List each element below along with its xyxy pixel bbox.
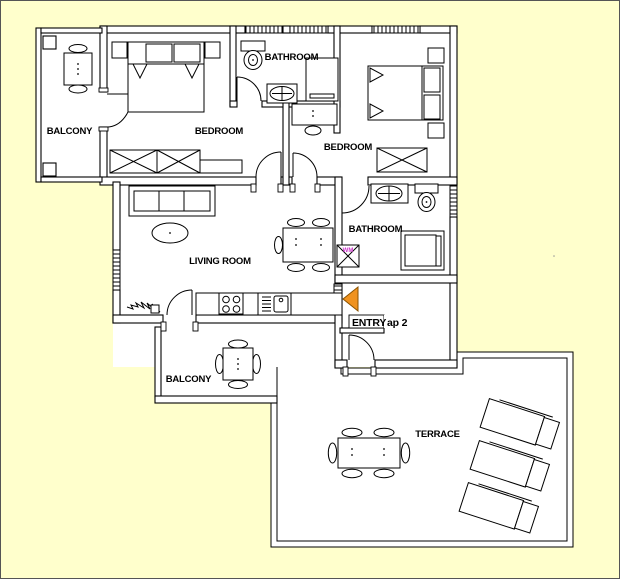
window-icon: [372, 26, 420, 33]
bedroom-left-label: BEDROOM: [195, 126, 243, 137]
wall-segment: [450, 26, 457, 185]
desk-chair-icon: [305, 126, 321, 135]
chair-icon: [342, 428, 362, 436]
double-bed-icon: [128, 42, 204, 112]
chair-icon: [288, 219, 305, 227]
floor-plan: WM ENTRY ap 2: [0, 0, 620, 579]
chair-icon: [216, 355, 224, 374]
sink-icon: [371, 184, 408, 203]
wall-segment: [41, 177, 102, 182]
sofa-icon: [129, 186, 215, 216]
wall-segment: [230, 26, 236, 106]
wall-segment: [230, 101, 237, 107]
desk-icon: [292, 104, 337, 125]
chair-icon: [313, 219, 330, 227]
wall-segment: [335, 177, 342, 367]
wall-segment: [155, 396, 277, 403]
chair-icon: [69, 45, 87, 53]
wall-segment: [375, 360, 457, 368]
terrace-label: TERRACE: [415, 429, 460, 440]
balcony-pillar: [43, 163, 56, 176]
living-room-label: LIVING ROOM: [189, 256, 251, 267]
balcony-top-label: BALCONY: [47, 126, 93, 137]
window-icon: [245, 26, 283, 33]
stove-icon: [219, 293, 243, 314]
balcony-bottom-label: BALCONY: [166, 374, 212, 385]
balcony-pillar: [43, 36, 56, 49]
wall-segment: [155, 327, 161, 397]
stray-dot: [553, 255, 555, 257]
chair-icon: [313, 264, 330, 272]
wall-segment: [196, 315, 342, 323]
sink-icon: [267, 84, 297, 103]
kitchen-sink-icon: [258, 293, 291, 315]
chair-icon: [229, 340, 248, 348]
nightstand-icon: [112, 42, 127, 58]
kitchen-counter: [196, 293, 342, 315]
entry-label: ENTRY: [352, 317, 386, 329]
chair-icon: [374, 469, 394, 477]
window-icon: [290, 26, 328, 33]
coffee-table-icon: [152, 223, 188, 243]
chair-icon: [401, 443, 409, 463]
chair-icon: [328, 443, 336, 463]
washing-machine-icon: WM: [337, 245, 359, 267]
wall-segment: [450, 217, 457, 367]
chair-icon: [275, 237, 283, 254]
nightstand-icon: [428, 123, 444, 138]
wall-segment: [41, 28, 102, 33]
wall-segment: [283, 26, 290, 33]
double-bed-icon: [368, 66, 443, 120]
nightstand-icon: [205, 42, 220, 58]
wall-segment: [100, 177, 256, 185]
chair-icon: [69, 85, 87, 93]
wall-segment: [283, 101, 289, 185]
bathtub-icon: [306, 58, 338, 101]
wardrobe-icon: [377, 148, 427, 172]
chair-icon: [253, 355, 261, 374]
chair-icon: [288, 264, 305, 272]
nightstand-icon: [428, 48, 444, 63]
washing-machine-label: WM: [343, 248, 354, 254]
chair-icon: [342, 469, 362, 477]
chair-icon: [229, 381, 248, 389]
wall-segment: [100, 26, 107, 92]
window-icon: [450, 185, 457, 217]
wall-segment: [113, 315, 163, 323]
wall-segment: [100, 26, 245, 33]
bathroom-top-label: BATHROOM: [265, 52, 319, 63]
window-icon: [113, 250, 120, 290]
bedroom-right-label: BEDROOM: [324, 142, 372, 153]
wall-segment: [36, 28, 41, 182]
bathroom-middle-label: BATHROOM: [349, 224, 403, 235]
wall-segment: [335, 275, 457, 283]
wall-segment: [113, 182, 120, 250]
entry-unit-label: ap 2: [387, 317, 408, 329]
wall-segment: [100, 127, 107, 182]
bathtub-icon: [401, 231, 444, 270]
chair-icon: [374, 428, 394, 436]
